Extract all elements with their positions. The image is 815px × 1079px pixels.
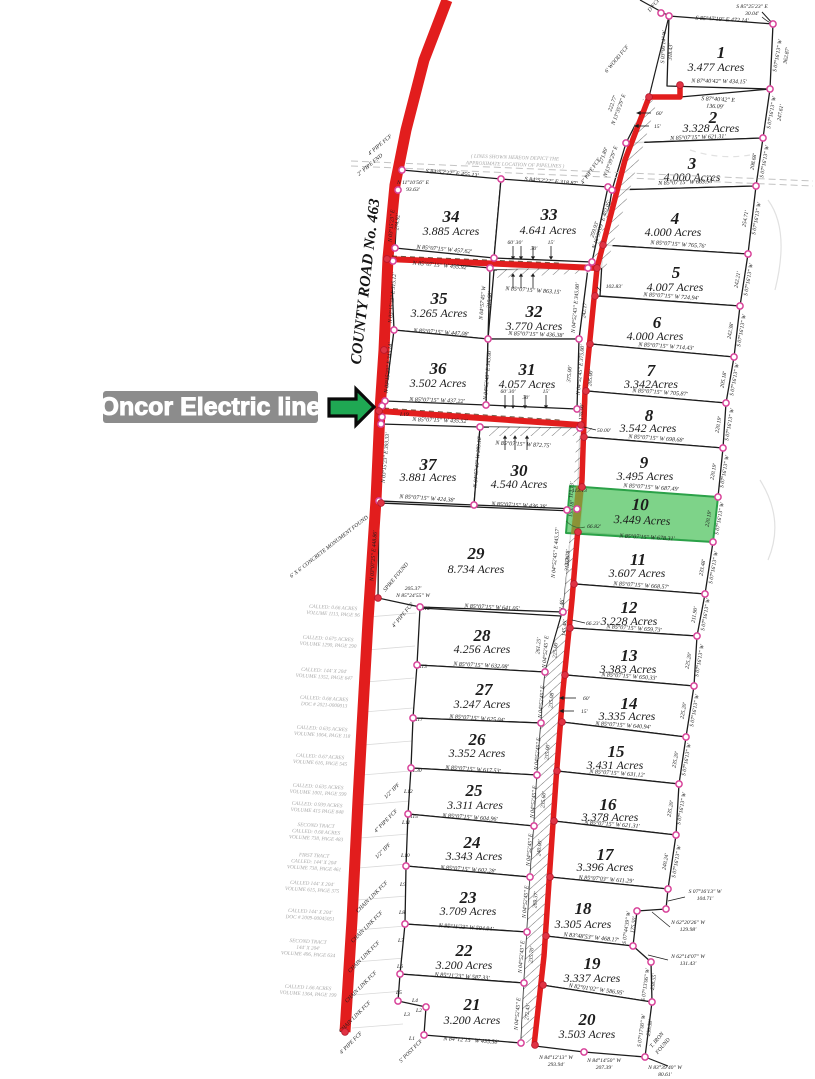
svg-text:15′: 15′ [654,124,662,130]
svg-text:N 85°24′55″ W: N 85°24′55″ W [395,592,431,599]
svg-text:3.709 Acres: 3.709 Acres [439,904,497,918]
svg-text:N 62°14′07″ W: N 62°14′07″ W [670,953,706,960]
svg-text:L4: L4 [411,998,418,1004]
svg-text:29: 29 [467,544,486,563]
svg-text:207.39′: 207.39′ [596,1065,613,1071]
svg-text:L10: L10 [400,853,410,859]
svg-text:30′: 30′ [522,395,531,401]
svg-text:Oncor Electric line: Oncor Electric line [100,393,321,421]
svg-text:4.641 Acres: 4.641 Acres [520,223,577,237]
svg-text:15′: 15′ [581,709,589,715]
svg-text:3.311 Acres: 3.311 Acres [446,798,503,812]
svg-text:3.502 Acres: 3.502 Acres [409,376,467,390]
svg-text:L1: L1 [408,1036,415,1042]
svg-text:L11: L11 [401,820,410,826]
svg-text:104.71′: 104.71′ [697,896,714,902]
svg-text:S 85°25′23″ E: S 85°25′23″ E [736,3,768,10]
svg-text:4.256 Acres: 4.256 Acres [454,642,511,656]
svg-text:L19: L19 [399,412,409,418]
svg-text:3.305 Acres: 3.305 Acres [554,917,612,931]
svg-text:L8: L8 [398,910,405,916]
svg-text:50.00′: 50.00′ [597,428,612,434]
svg-text:3.477 Acres: 3.477 Acres [687,60,745,74]
svg-text:293.94′: 293.94′ [548,1062,565,1068]
svg-text:L12: L12 [403,789,413,795]
svg-text:L3: L3 [403,1012,410,1018]
svg-text:10: 10 [631,495,649,515]
svg-text:3.449 Acres: 3.449 Acres [613,512,671,528]
svg-text:3.881 Acres: 3.881 Acres [399,470,457,484]
svg-text:66.23′: 66.23′ [586,621,601,627]
svg-text:3.885 Acres: 3.885 Acres [422,224,480,238]
svg-text:L5: L5 [395,990,402,996]
svg-text:3.328 Acres: 3.328 Acres [682,121,740,135]
svg-text:60′: 60′ [656,111,664,117]
svg-text:3.200 Acres: 3.200 Acres [435,958,493,972]
svg-text:N 84°14′50″ W: N 84°14′50″ W [586,1057,622,1064]
svg-text:N 87°40′42″ W 434.15′: N 87°40′42″ W 434.15′ [690,77,747,85]
svg-text:131.43′: 131.43′ [680,961,697,967]
svg-text:60′: 60′ [583,696,591,702]
svg-text:3.352 Acres: 3.352 Acres [448,746,506,760]
svg-text:33: 33 [540,205,559,224]
svg-text:15′: 15′ [548,240,556,246]
svg-text:3.396 Acres: 3.396 Acres [576,860,634,874]
svg-text:3.200 Acres: 3.200 Acres [443,1013,501,1027]
svg-text:66.82': 66.82' [587,524,602,530]
svg-text:3.542 Acres: 3.542 Acres [619,421,677,435]
svg-text:3.343 Acres: 3.343 Acres [445,849,503,863]
svg-text:L7: L7 [397,938,404,944]
svg-text:205.37′: 205.37′ [405,586,422,592]
svg-text:N 62°20′26″ W: N 62°20′26″ W [670,919,706,926]
svg-text:L9: L9 [399,882,406,888]
svg-text:N 11°10′56″ E: N 11°10′56″ E [396,179,430,186]
svg-text:4.000 Acres: 4.000 Acres [645,225,702,239]
svg-text:80.61′: 80.61′ [658,1072,673,1078]
svg-text:S 07°16′13″ W: S 07°16′13″ W [689,888,723,895]
svg-text:18: 18 [575,899,593,918]
svg-text:3.265 Acres: 3.265 Acres [410,306,468,320]
svg-text:N 84°12′13″ W: N 84°12′13″ W [538,1054,574,1061]
svg-text:21: 21 [463,995,481,1014]
svg-text:15′: 15′ [543,389,551,395]
svg-text:60′ 30′: 60′ 30′ [500,389,516,395]
svg-text:30′: 30′ [530,246,539,252]
svg-text:L2: L2 [415,1008,422,1014]
svg-text:136.09′: 136.09′ [706,104,725,111]
svg-text:4.000 Acres: 4.000 Acres [627,329,684,343]
svg-text:30.04′: 30.04′ [744,11,760,17]
svg-text:3.503 Acres: 3.503 Acres [558,1027,616,1041]
svg-text:3.247 Acres: 3.247 Acres [453,697,511,711]
svg-text:L6: L6 [396,964,403,970]
svg-text:129.98′: 129.98′ [680,927,697,933]
svg-text:8.734 Acres: 8.734 Acres [448,562,505,576]
svg-text:60′ 30′: 60′ 30′ [507,240,523,246]
svg-text:102.83′: 102.83′ [606,284,623,290]
svg-text:318.43′: 318.43′ [668,43,675,62]
svg-text:4.540 Acres: 4.540 Acres [491,477,548,491]
svg-text:93.63′: 93.63′ [406,187,421,193]
svg-text:3.607 Acres: 3.607 Acres [608,566,666,580]
svg-text:3.495 Acres: 3.495 Acres [616,469,674,483]
